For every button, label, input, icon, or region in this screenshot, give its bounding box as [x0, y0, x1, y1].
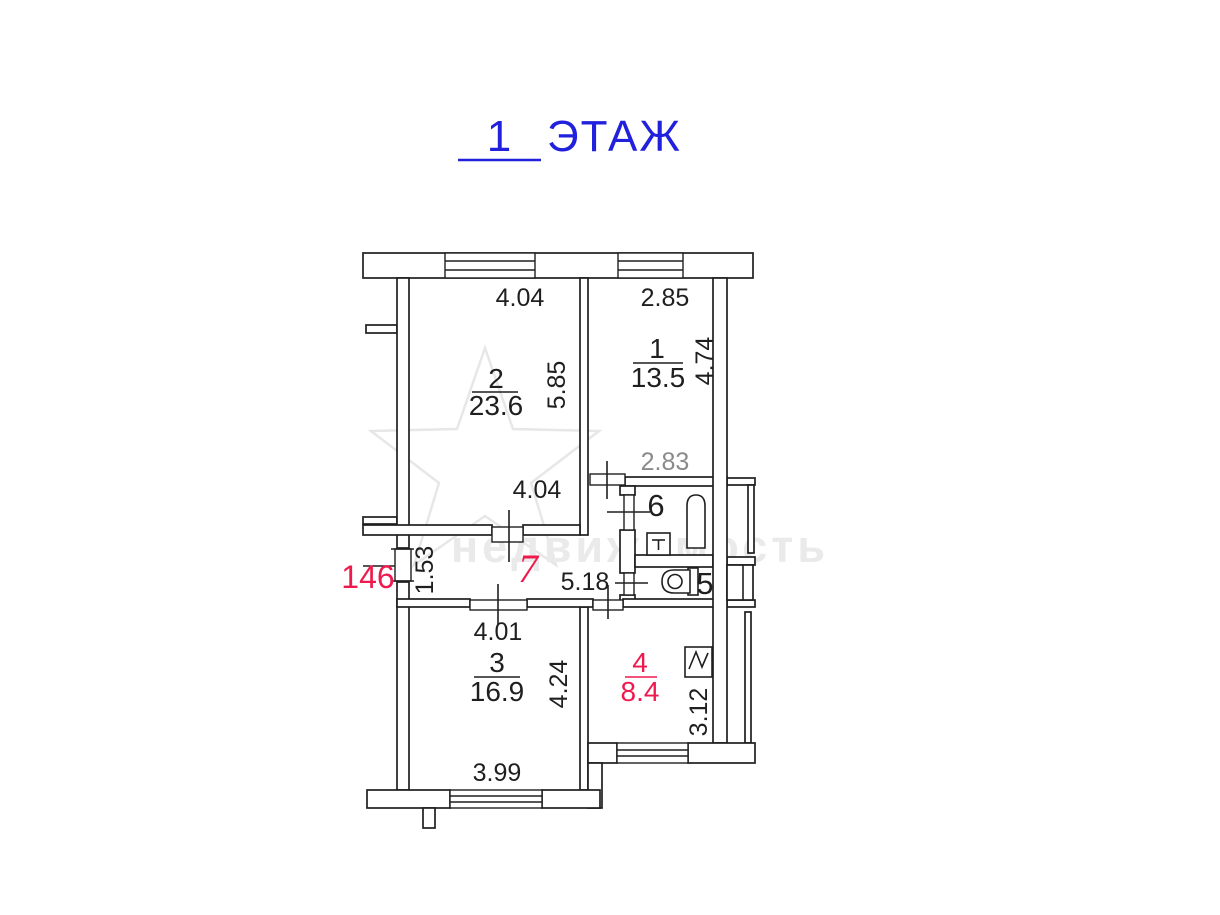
- door-entrance: [395, 549, 411, 581]
- apartment-number: 146: [341, 559, 394, 595]
- wall-stub-bottom: [423, 808, 435, 828]
- room1-area: 13.5: [631, 362, 686, 393]
- wall-stub-left-mid: [363, 517, 397, 524]
- room4-number: 4: [632, 647, 648, 678]
- page-title: 1 ЭТАЖ: [458, 112, 682, 161]
- wall-room4-bottom-b: [688, 743, 755, 763]
- room5-number: 5: [696, 566, 713, 601]
- wall-top: [363, 253, 753, 278]
- title-floor-number: 1: [487, 112, 513, 161]
- room6-number: 6: [647, 488, 664, 523]
- dim-room7-left: 1.53: [411, 546, 439, 595]
- wall-room3-bottom-a: [367, 790, 450, 808]
- shaft-box: [727, 565, 753, 600]
- dim-room3-right: 4.24: [545, 660, 573, 709]
- wall-stub-right-1: [727, 478, 755, 485]
- wall-bath-left-a: [620, 486, 635, 495]
- dim-room1-right: 4.74: [691, 337, 719, 386]
- dim-room2-right: 5.85: [543, 361, 571, 410]
- wall-neighbor-right-upper: [748, 485, 754, 553]
- toilet-icon: [662, 568, 698, 595]
- room1-number: 1: [649, 333, 665, 364]
- wall-stub-right-3: [727, 600, 755, 607]
- dim-room3-top: 4.01: [474, 618, 523, 646]
- wall-stub-right-2: [727, 557, 755, 565]
- window-room4: [617, 743, 688, 763]
- wall-neighbor-right-lower: [745, 612, 751, 743]
- title-floor-label: ЭТАЖ: [547, 112, 682, 161]
- wall-left-lower: [397, 582, 409, 790]
- wall-corridor-bottom-b: [527, 599, 593, 607]
- window-room2: [445, 253, 535, 278]
- room3-number: 3: [489, 647, 505, 678]
- wall-left-upper: [397, 278, 409, 548]
- wall-stub-left-top: [366, 325, 397, 333]
- wall-room2-room1: [580, 278, 588, 535]
- dim-room4-right: 3.12: [685, 688, 713, 737]
- dim-room7-bottom: 5.18: [561, 568, 610, 596]
- wall-corridor-top-b: [523, 525, 580, 535]
- floor-plan-page: недвижимость: [0, 0, 1220, 915]
- stove-icon: [685, 647, 712, 677]
- window-room3: [450, 790, 542, 808]
- floor-plan-svg: недвижимость: [0, 0, 1220, 915]
- bathtub-icon: [687, 495, 705, 548]
- dim-room1-bottom: 2.83: [641, 448, 690, 476]
- dim-room1-top: 2.85: [641, 284, 690, 312]
- wall-room3-bottom-b: [542, 790, 600, 808]
- dim-room3-bottom: 3.99: [473, 759, 522, 787]
- door-room2: [492, 527, 523, 542]
- sink-icon: [647, 533, 670, 555]
- door-room5: [624, 573, 634, 595]
- room3-area: 16.9: [470, 676, 525, 707]
- wall-bath-left-b: [620, 530, 635, 573]
- room2-area: 23.6: [469, 390, 524, 421]
- wall-room3-room4: [580, 607, 588, 790]
- wall-room4-bottom-a: [588, 743, 617, 763]
- room7-number: 7: [518, 546, 540, 591]
- dim-room2-top: 4.04: [496, 284, 545, 312]
- window-room1: [618, 253, 683, 278]
- watermark: недвижимость: [371, 348, 829, 572]
- wall-corridor-top-a: [363, 525, 492, 535]
- wall-room1-bottom: [625, 477, 727, 486]
- room4-area: 8.4: [621, 676, 660, 707]
- dim-room2-bottom: 4.04: [513, 476, 562, 504]
- wall-corridor-bottom-a: [397, 599, 470, 607]
